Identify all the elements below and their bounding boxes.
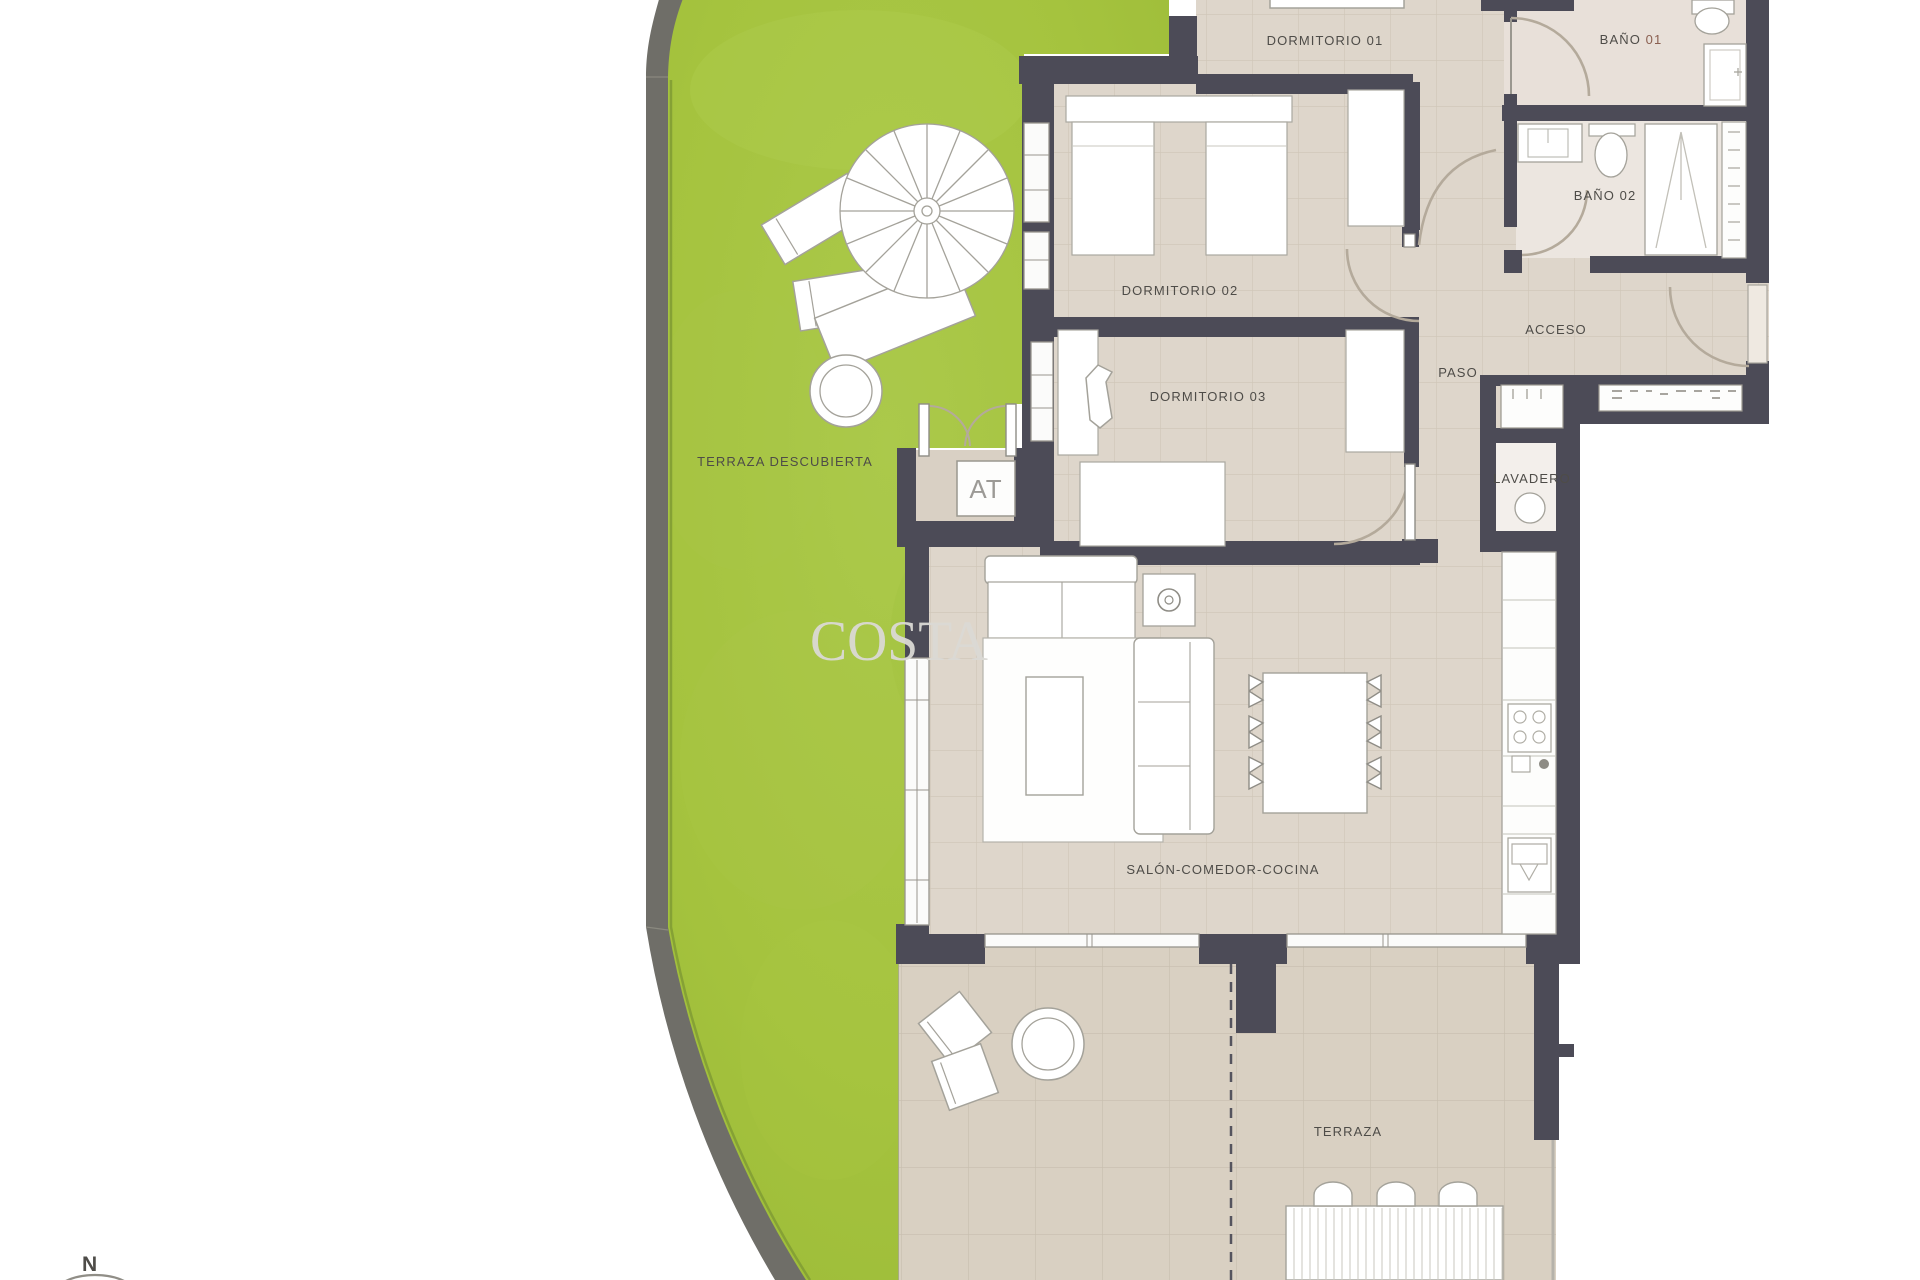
svg-text:BAÑO 02: BAÑO 02 bbox=[1574, 188, 1637, 203]
svg-text:N: N bbox=[82, 1253, 97, 1276]
svg-text:DORMITORIO 03: DORMITORIO 03 bbox=[1150, 389, 1267, 404]
svg-text:ACCESO: ACCESO bbox=[1525, 322, 1587, 337]
svg-text:LAVADERO: LAVADERO bbox=[1493, 471, 1571, 486]
svg-text:DORMITORIO 02: DORMITORIO 02 bbox=[1122, 283, 1239, 298]
svg-text:TERRAZA: TERRAZA bbox=[1314, 1124, 1382, 1139]
svg-text:BAÑO 01: BAÑO 01 bbox=[1600, 32, 1663, 47]
svg-text:DORMITORIO 01: DORMITORIO 01 bbox=[1267, 33, 1384, 48]
svg-text:SALÓN-COMEDOR-COCINA: SALÓN-COMEDOR-COCINA bbox=[1126, 862, 1319, 877]
svg-text:PASO: PASO bbox=[1438, 365, 1478, 380]
svg-text:AT: AT bbox=[969, 474, 1002, 504]
svg-text:COSTA: COSTA bbox=[810, 610, 988, 673]
svg-text:TERRAZA DESCUBIERTA: TERRAZA DESCUBIERTA bbox=[697, 454, 873, 469]
